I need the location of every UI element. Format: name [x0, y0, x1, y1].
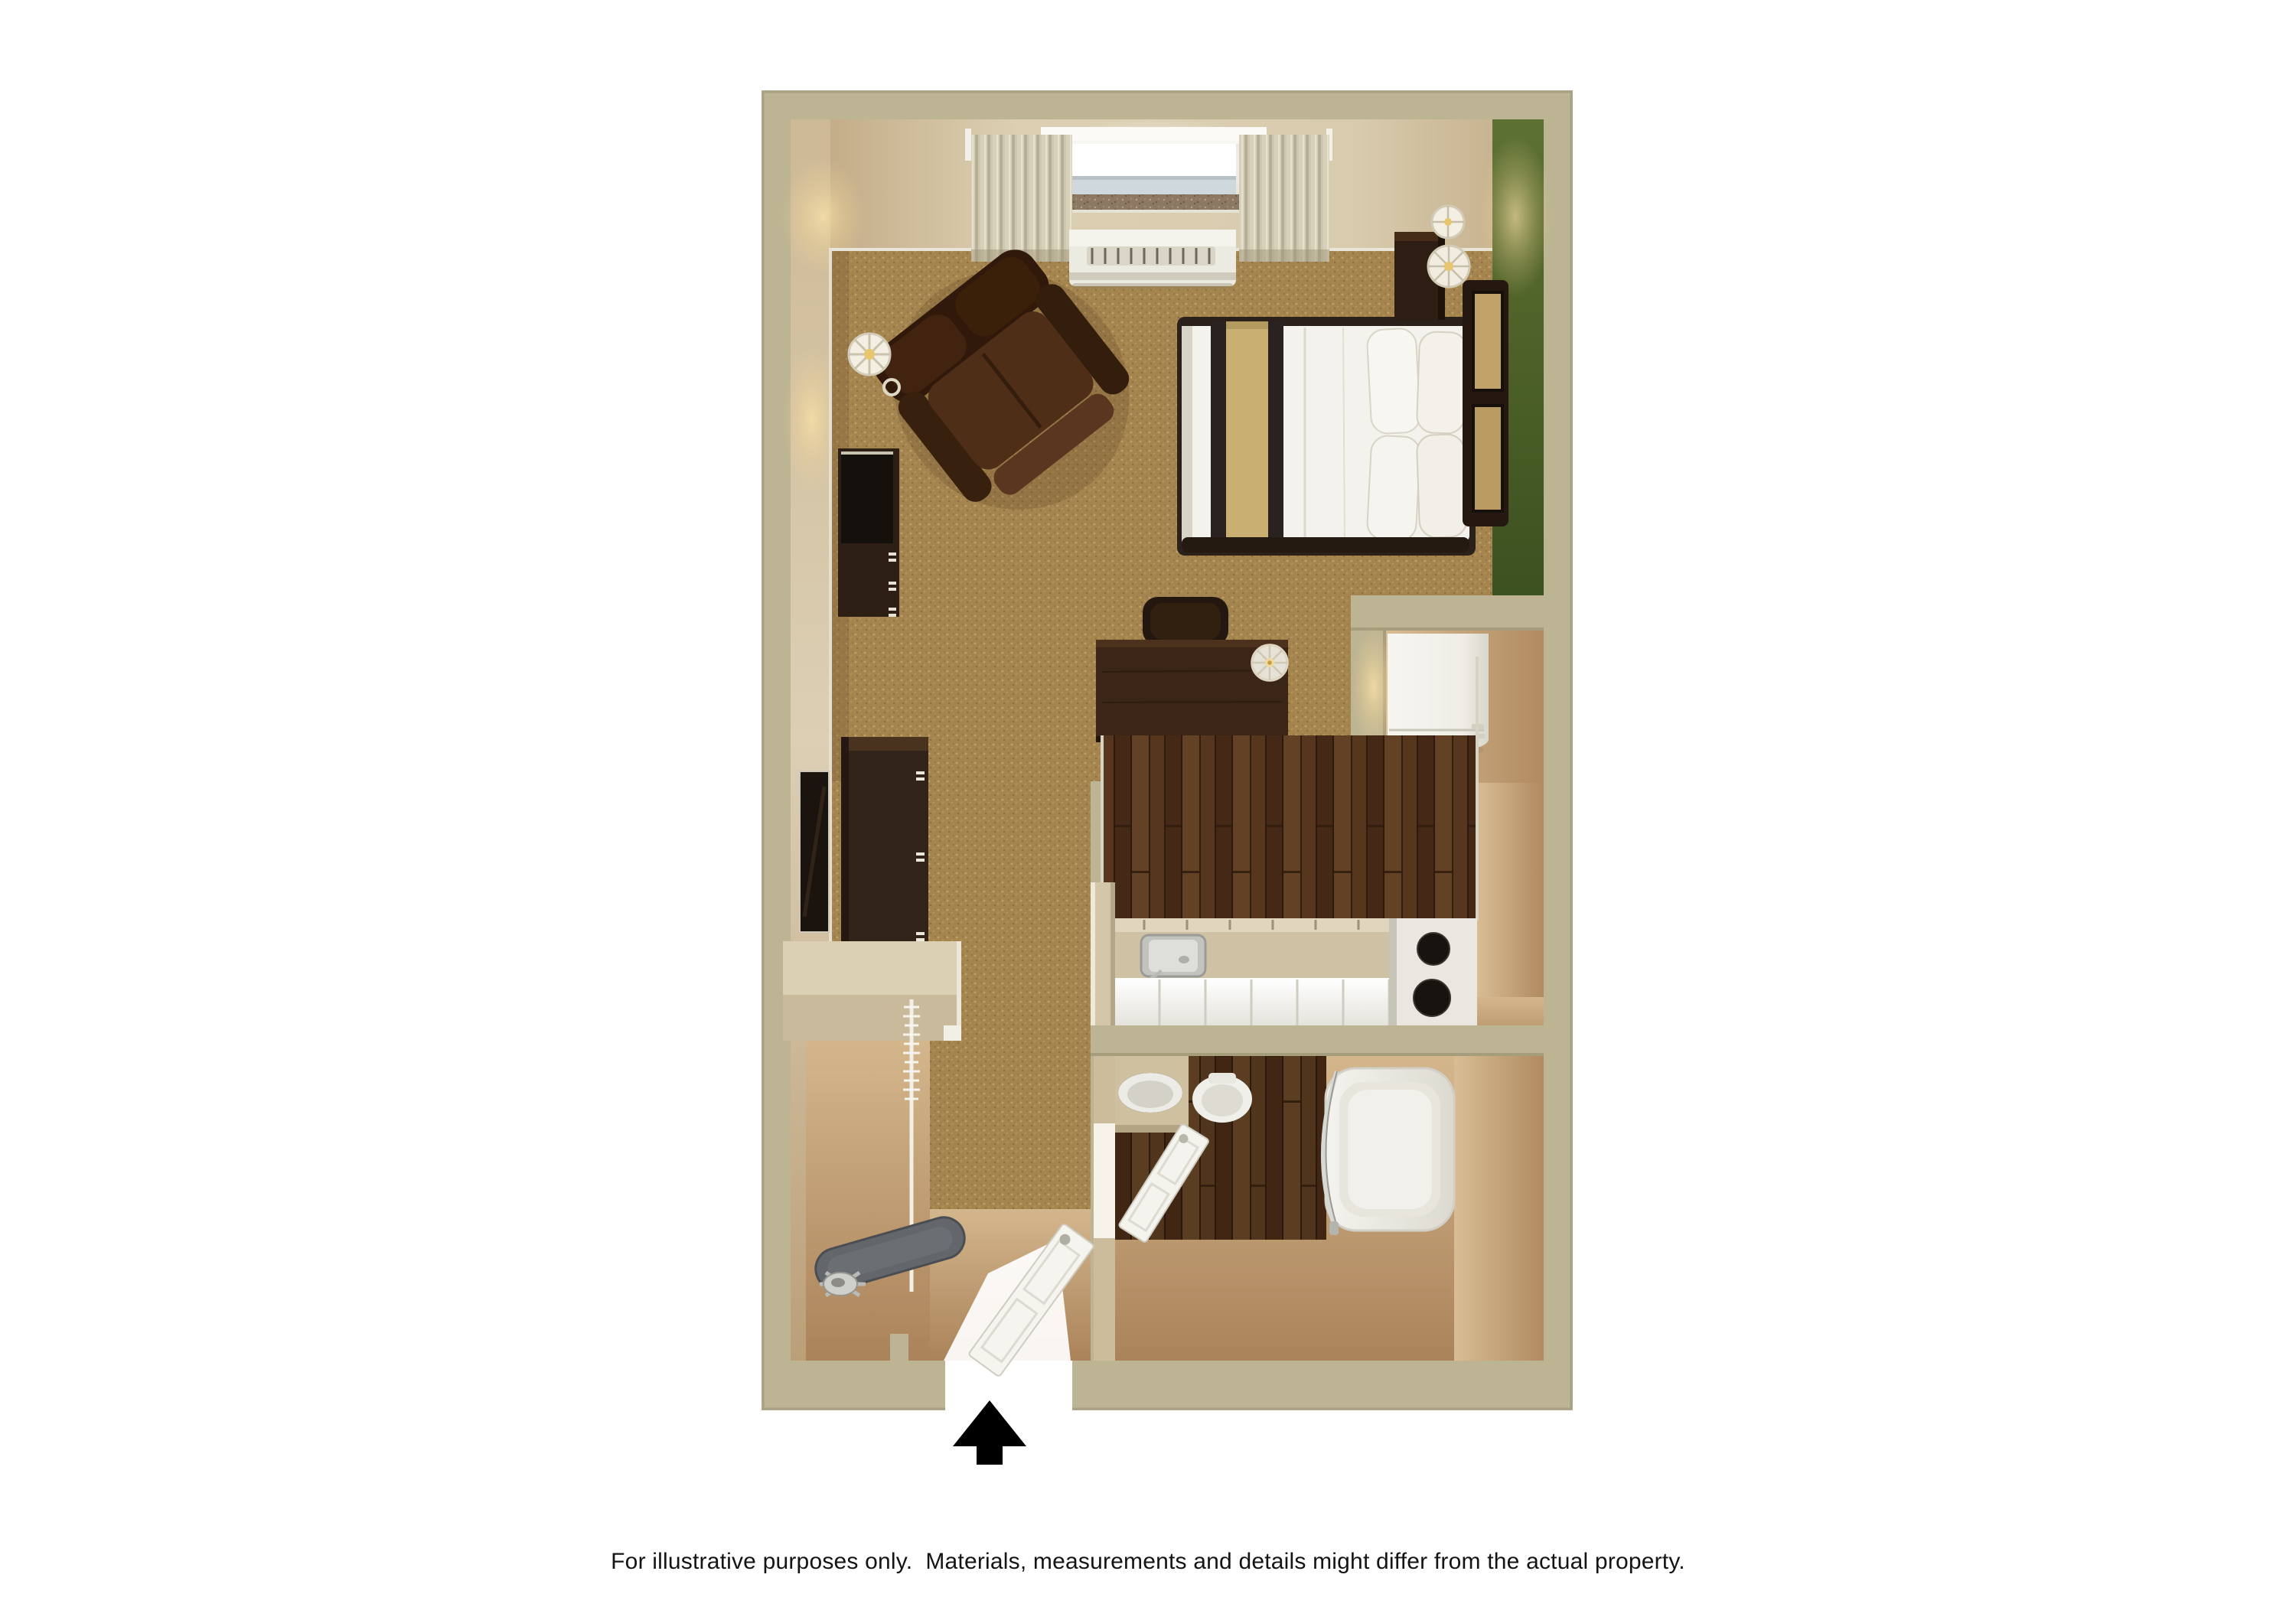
bathroom [1094, 1056, 1544, 1361]
stove [1389, 918, 1477, 1030]
desk-chair [1143, 597, 1228, 646]
caption: For illustrative purposes only. Material… [0, 1549, 2296, 1575]
vanity-sink [1115, 1056, 1189, 1133]
bathroom-doorway [1094, 1123, 1115, 1238]
tv-console [838, 448, 899, 617]
queen-bed [1177, 280, 1508, 556]
wall-mirror [800, 771, 829, 932]
floor-plan-rendering [762, 90, 1573, 1468]
kitchen-sink [1141, 935, 1205, 978]
window-valance [1041, 127, 1267, 141]
bed-foot-rail [1182, 537, 1469, 553]
dresser [841, 737, 928, 947]
window-sill [1065, 194, 1241, 211]
bathroom-north-wall [1089, 1025, 1544, 1056]
bed-runner [1211, 321, 1283, 549]
rod-foot [1329, 1221, 1339, 1235]
wall-stub [890, 1334, 908, 1361]
half-wall [1089, 882, 1115, 1028]
page: For illustrative purposes only. Material… [0, 0, 2296, 1607]
headboard [1463, 280, 1508, 526]
wall-edge [1089, 1053, 1544, 1056]
desk-lamp [1252, 645, 1287, 680]
closet-shelf [783, 941, 961, 1041]
ac-unit [1069, 230, 1236, 289]
bathtub [1326, 1068, 1454, 1231]
floor-plan [762, 90, 1573, 1468]
